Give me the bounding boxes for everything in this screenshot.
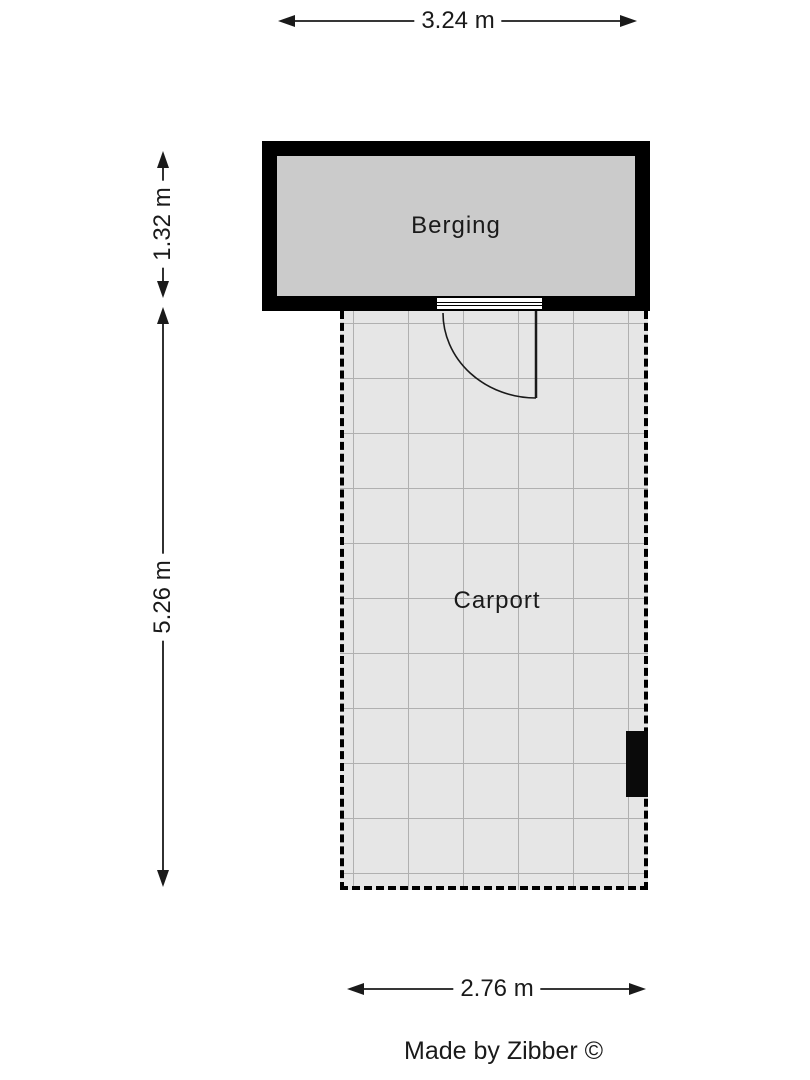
- door-threshold: [435, 296, 544, 311]
- dimension-label-left-lower: 5.26 m: [149, 553, 177, 640]
- dimension-label-top: 3.24 m: [414, 7, 501, 35]
- credit-text: Made by Zibber ©: [404, 1037, 603, 1066]
- carport-post-object: [626, 731, 648, 797]
- room-label-carport: Carport: [453, 587, 540, 615]
- dimension-label-bottom: 2.76 m: [453, 975, 540, 1003]
- room-label-berging: Berging: [411, 212, 501, 240]
- floorplan-canvas: 3.24 m 1.32 m 5.26 m 2.76 m Berging Carp…: [0, 0, 810, 1080]
- dimension-label-left-upper: 1.32 m: [149, 180, 177, 267]
